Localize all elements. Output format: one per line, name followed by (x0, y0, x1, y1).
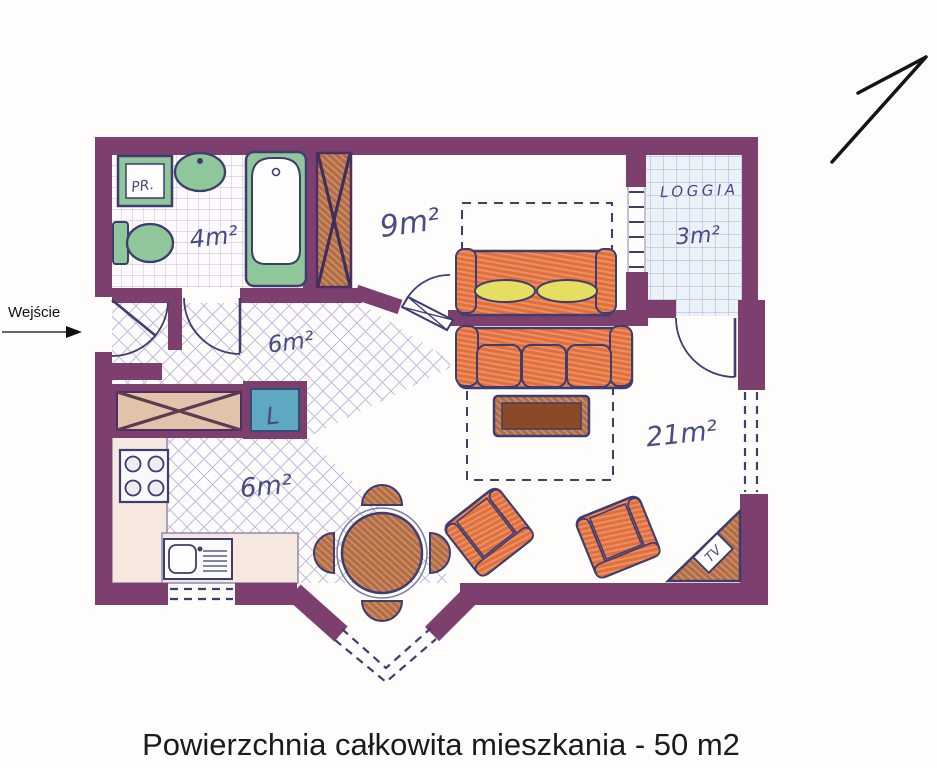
kitchen-sink (164, 539, 232, 579)
dining-table (337, 508, 427, 598)
wall-loggia-left-top (626, 152, 646, 187)
wall-loggia-right (742, 137, 758, 302)
wall-left-upper (95, 137, 112, 297)
entrance-arrow-icon (66, 326, 82, 338)
bedroom-area-label: 9m² (378, 202, 443, 245)
dining-chair-north (362, 485, 402, 505)
door-loggia (676, 318, 735, 377)
kitchen-area-label: 6m² (239, 470, 294, 504)
entrance-label: Wejście (8, 304, 60, 321)
door-bedroom (402, 275, 453, 330)
washer-label: PR. (130, 177, 155, 196)
sink-faucet-icon (197, 158, 203, 164)
sink-tap-icon (198, 547, 203, 552)
sofa (456, 326, 632, 388)
bathroom-area-label: 4m² (188, 221, 239, 254)
wall-hall-kitchen-stub (112, 363, 162, 380)
wall-right-upper (738, 300, 765, 390)
pillow (475, 280, 535, 302)
bathroom-sink (175, 153, 225, 191)
tv-unit: TV (668, 511, 740, 581)
bedroom-wardrobe (317, 153, 351, 287)
wall-right-lower (740, 494, 768, 605)
wall-bottom-left-b (235, 583, 297, 605)
dining-chair-east (430, 533, 450, 573)
toilet (113, 222, 173, 264)
wall-bathroom-south-right (240, 288, 362, 303)
sofa-cushion (477, 345, 521, 387)
armchair-left (443, 486, 536, 578)
window-bedroom-loggia (628, 187, 645, 272)
wall-bottom-left-a (95, 583, 168, 605)
dining-chair-south (362, 601, 402, 621)
washing-machine: PR. (118, 156, 172, 206)
loggia-area-label: 3m² (675, 222, 721, 250)
bed (456, 249, 616, 315)
entrance-annotation: Wejście (2, 304, 82, 338)
wall-bottom-right (460, 583, 768, 605)
fridge: L (243, 381, 307, 439)
north-arrow-icon (832, 57, 926, 162)
bed-dashed-outline (462, 203, 612, 253)
bathtub (246, 152, 306, 286)
floorplan-page: PR. L (0, 0, 937, 768)
wall-loggia-bottom (648, 300, 676, 318)
pillow (537, 280, 597, 302)
hall-wardrobe (108, 384, 250, 438)
wall-bay-left (294, 592, 341, 634)
window-kitchen (170, 589, 233, 599)
armchair-right (574, 495, 661, 580)
total-area-caption: Powierzchnia całkowita mieszkania - 50 m… (142, 727, 740, 762)
stove (120, 450, 168, 502)
coffee-table (494, 396, 589, 436)
window-bay-outer (335, 639, 436, 682)
window-living (745, 392, 757, 492)
floorplan-canvas: PR. L (0, 0, 937, 768)
sofa-cushion (522, 345, 566, 387)
living-area-label: 21m² (645, 415, 720, 453)
window-bay-inner (342, 628, 431, 668)
sofa-cushion (567, 345, 611, 387)
wall-vestibule-stub (168, 288, 182, 350)
loggia-name-label: LOGGIA (660, 180, 739, 201)
